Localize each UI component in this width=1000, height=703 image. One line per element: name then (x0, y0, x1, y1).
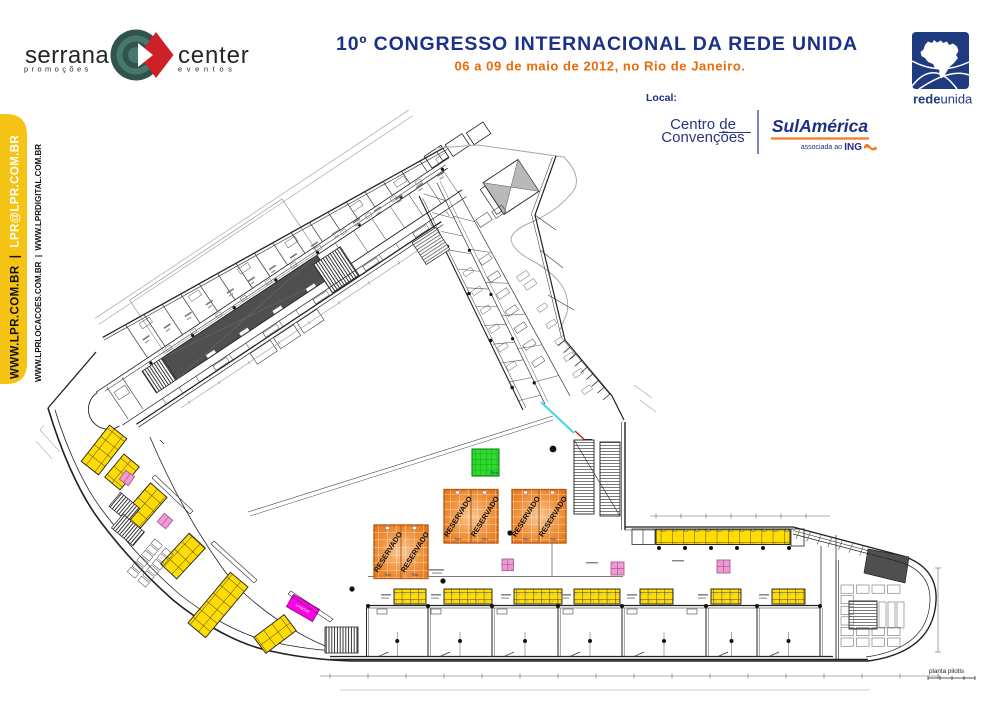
svg-text:70m: 70m (522, 538, 529, 542)
svg-text:associada ao: associada ao (801, 144, 842, 151)
svg-text:70m: 70m (384, 573, 391, 577)
svg-text:planta pilotis: planta pilotis (929, 668, 964, 675)
svg-text:06 a 09 de maio de 2012, no Ri: 06 a 09 de maio de 2012, no Rio de Janei… (455, 59, 746, 74)
svg-text:ING: ING (844, 142, 862, 153)
svg-text:70m: 70m (411, 573, 418, 577)
svg-text:WWW.LPR.COM.BR | LPR@LPR.COM: WWW.LPR.COM.BR | LPR@LPR.COM.BR (10, 134, 22, 379)
svg-text:70m: 70m (454, 538, 461, 542)
svg-text:redeunida: redeunida (913, 92, 973, 107)
svg-text:SulAmérica: SulAmérica (772, 116, 869, 136)
svg-text:promoções: promoções (24, 65, 92, 74)
svg-text:Convenções: Convenções (661, 129, 744, 146)
svg-text:WWW.LPRLOCACOES.COM.BR | WWW: WWW.LPRLOCACOES.COM.BR | WWW.LPRDIGITAL.… (34, 144, 43, 382)
svg-text:Local:: Local: (646, 92, 677, 104)
svg-text:10º CONGRESSO INTERNACIONAL DA: 10º CONGRESSO INTERNACIONAL DA REDE UNID… (336, 33, 858, 55)
svg-text:70m: 70m (481, 538, 488, 542)
svg-text:25m: 25m (490, 470, 498, 475)
svg-text:eventos: eventos (178, 65, 236, 74)
svg-text:70m: 70m (549, 538, 556, 542)
